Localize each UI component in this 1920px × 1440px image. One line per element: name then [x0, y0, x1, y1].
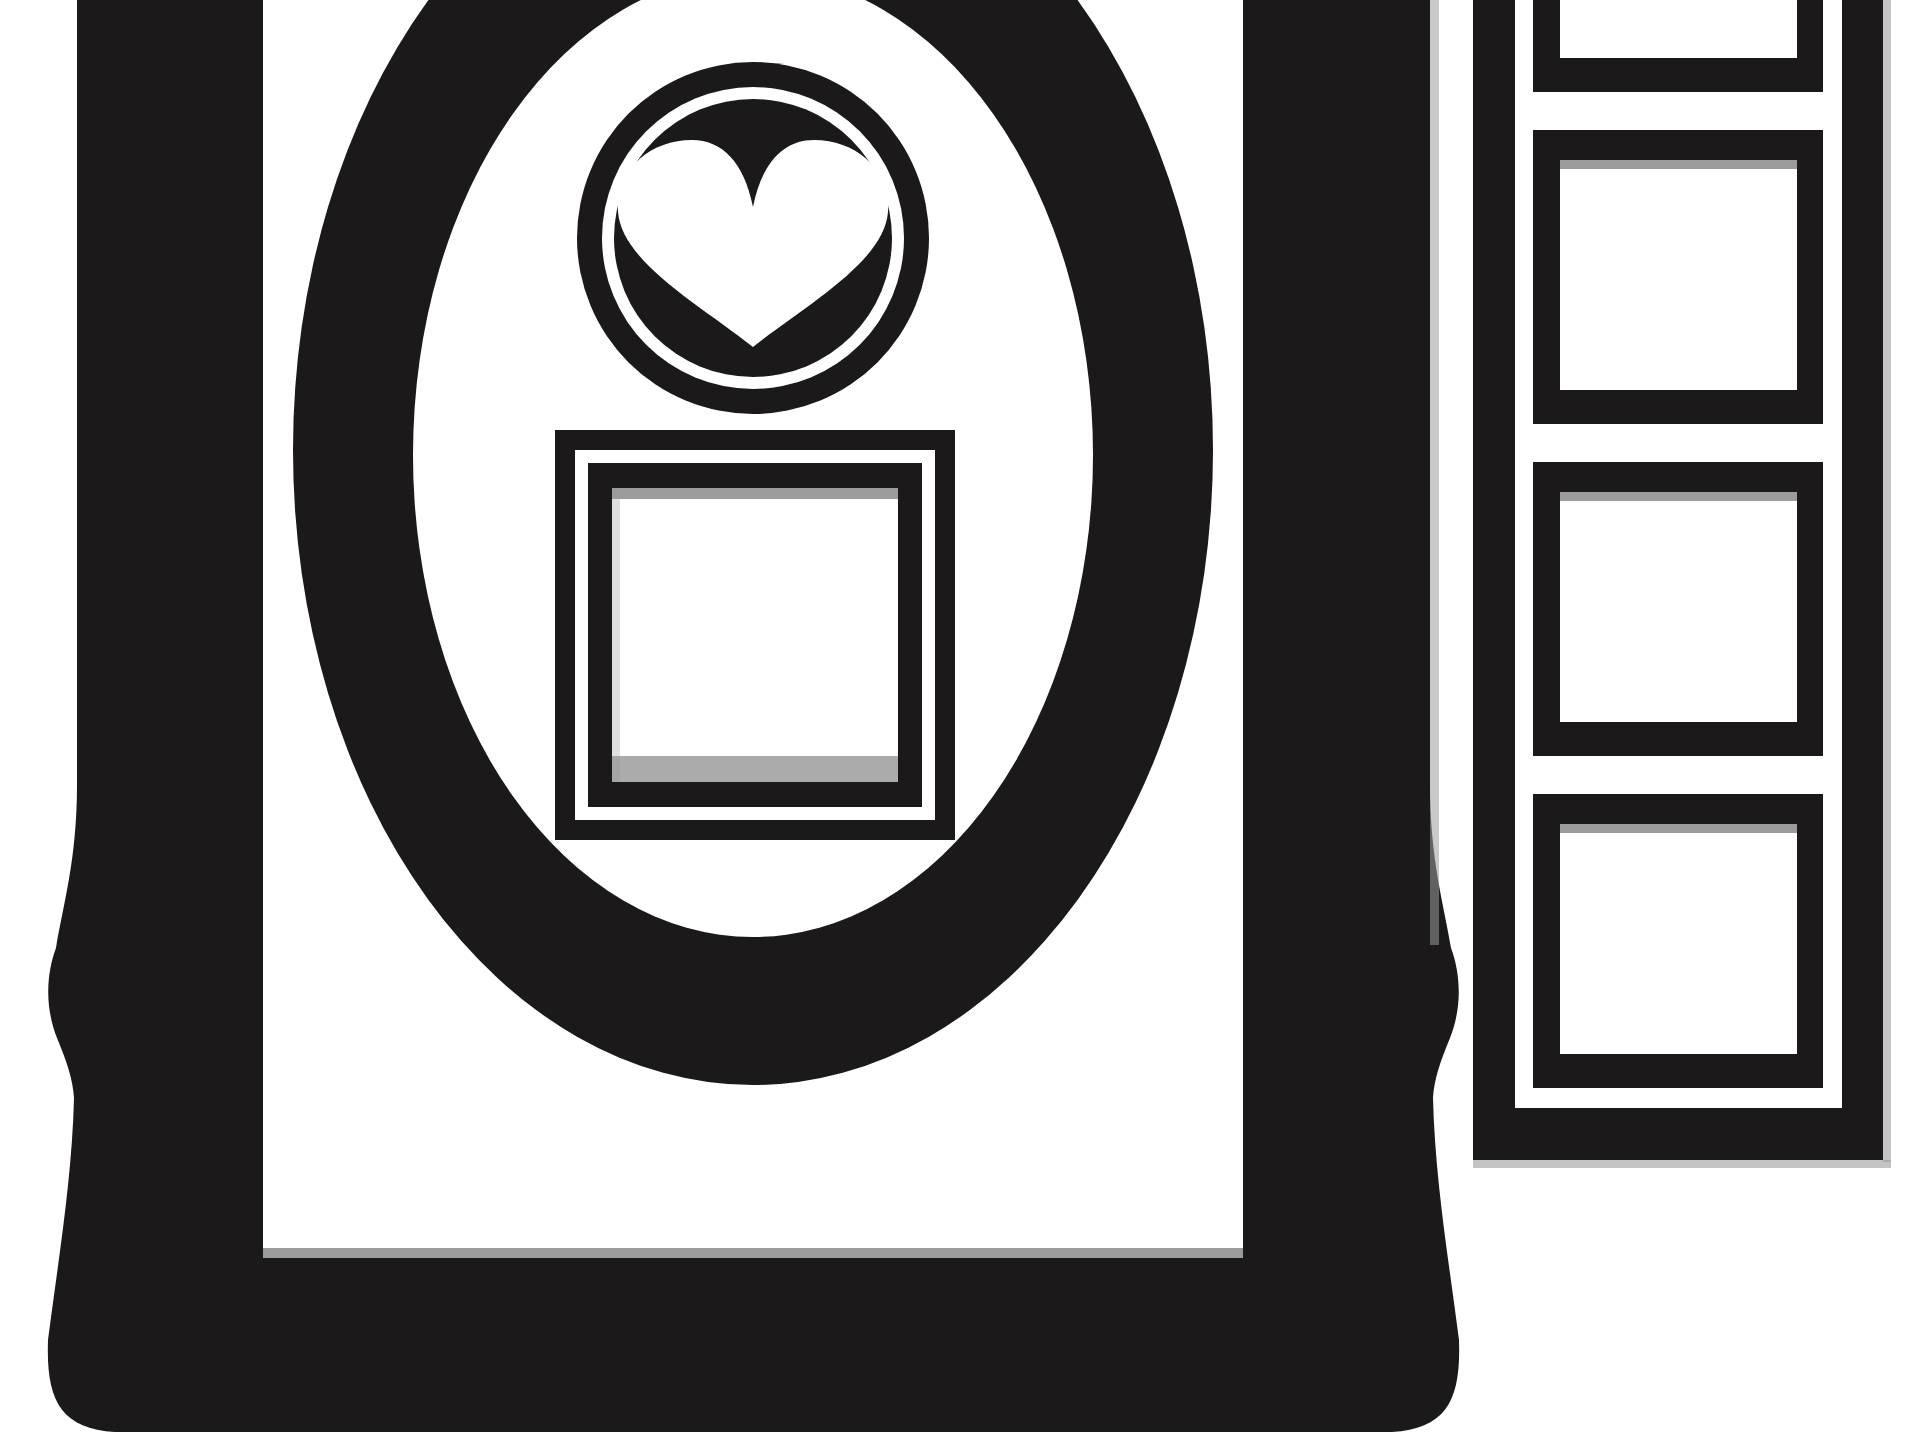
filmstrip-column — [1473, 0, 1891, 1168]
filmstrip-cell-window-shadow — [1560, 824, 1797, 833]
filmstrip-cell — [1515, 0, 1842, 112]
filmstrip-cell — [1515, 774, 1842, 1108]
filmstrip-cell — [1515, 442, 1842, 776]
filmstrip-cell-window — [1560, 824, 1797, 1054]
clipart-canvas — [0, 0, 1920, 1440]
filmstrip-cell-window — [1560, 160, 1797, 390]
filmstrip-cell-window — [1560, 0, 1797, 58]
square-frame-opening-left-shadow — [612, 499, 620, 782]
square-frame-opening-bottom-shadow — [612, 756, 898, 782]
square-frame-opening — [612, 488, 898, 782]
picture-frames-illustration — [0, 0, 1920, 1440]
filmstrip-right-shadow — [1883, 0, 1891, 1162]
square-frame — [555, 430, 955, 840]
filmstrip-cell — [1515, 110, 1842, 444]
square-frame-opening-top-shadow — [612, 488, 898, 499]
frame-right-edge-shadow — [1430, 0, 1439, 945]
filmstrip-cell-window-shadow — [1560, 160, 1797, 169]
filmstrip-cell-window-shadow — [1560, 492, 1797, 501]
filmstrip-bottom-shadow — [1473, 1160, 1891, 1168]
frame-opening-bottom-shadow — [263, 1248, 1243, 1258]
filmstrip-cell-window — [1560, 492, 1797, 722]
